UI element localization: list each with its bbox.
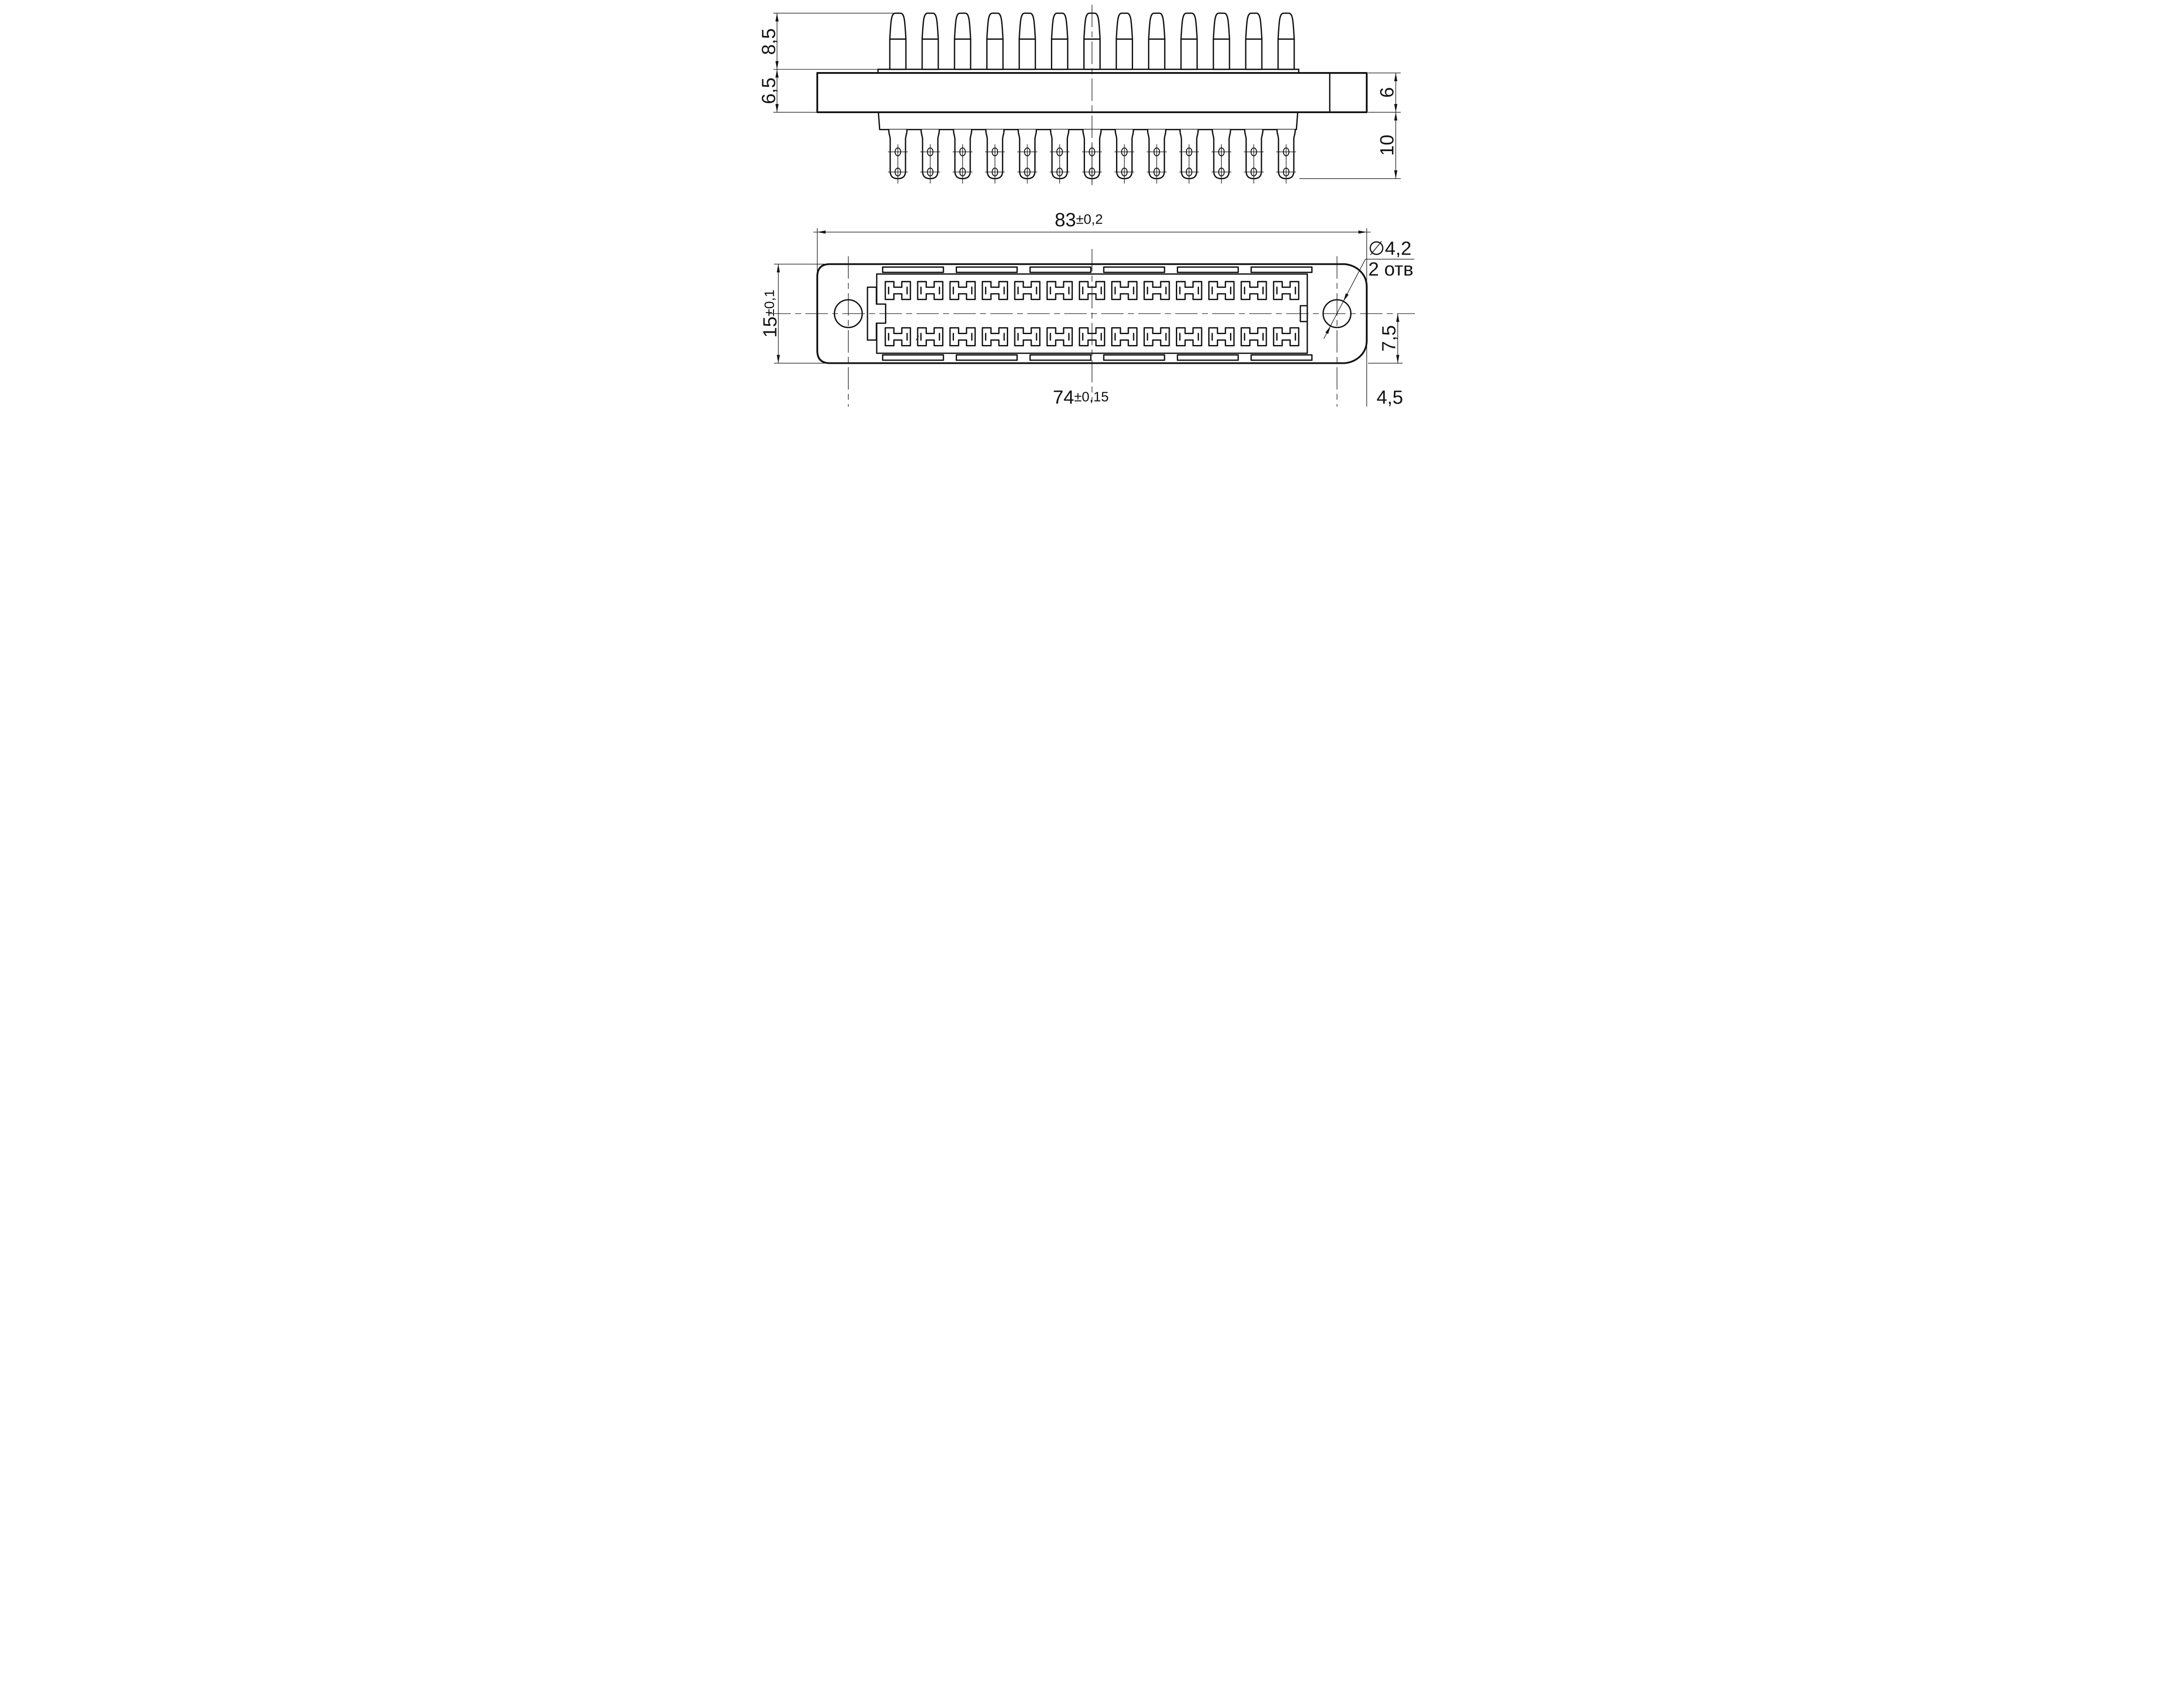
arrowhead	[1394, 170, 1397, 179]
front-view: 83±0,2 15±0,1 74±0,15 4,5 7,5	[759, 209, 1415, 407]
arrowhead	[777, 355, 780, 363]
hole-note-quantity: 2 отв	[1368, 259, 1413, 280]
arrowhead	[817, 231, 826, 234]
arrowhead	[1358, 231, 1367, 234]
hole-note-diameter: ∅4,2	[1368, 238, 1411, 259]
vent-slot	[956, 267, 1017, 273]
vent-slot	[1104, 267, 1165, 273]
pin	[1019, 13, 1035, 69]
dim-hole-edge-label: 4,5	[1376, 387, 1403, 407]
arrowhead	[775, 104, 778, 112]
arrowhead	[1396, 355, 1399, 363]
pin	[1149, 13, 1165, 69]
arrowhead	[775, 13, 778, 21]
vent-slot	[1251, 355, 1312, 360]
dim-shell-height-label: 6	[1376, 87, 1398, 97]
dim-half-height-label: 7,5	[1379, 325, 1400, 352]
pin	[987, 13, 1003, 69]
collar	[878, 112, 1298, 130]
vent-slot	[1178, 355, 1238, 360]
vent-slot	[1030, 355, 1091, 360]
technical-drawing: 8,5 6,5 6 10	[758, 0, 1426, 407]
dim-overall-width-label: 83±0,2	[1055, 209, 1103, 231]
pin	[1246, 13, 1262, 69]
dim-hole-span-label: 74±0,15	[1053, 387, 1109, 407]
arrowhead	[1394, 112, 1397, 121]
dim-tail-length-label: 10	[1376, 135, 1398, 156]
pin	[1213, 13, 1230, 69]
arrowhead	[777, 264, 780, 273]
vent-slot	[1104, 355, 1165, 360]
pin	[890, 13, 906, 69]
pin	[954, 13, 971, 69]
vent-slot	[883, 355, 943, 360]
dim-pin-height-label: 8,5	[758, 28, 779, 55]
vent-slot	[883, 267, 943, 273]
dim-body-height-label: 6,5	[758, 77, 779, 104]
arrowhead	[1394, 104, 1397, 112]
side-dim-left: 8,5 6,5	[758, 13, 816, 112]
dim-half-height: 7,5	[1368, 314, 1403, 363]
side-view: 8,5 6,5 6 10	[758, 5, 1400, 189]
vent-slot	[1030, 267, 1091, 273]
pin	[922, 13, 938, 69]
pin	[1278, 13, 1294, 69]
vent-slot	[956, 355, 1017, 360]
drawing-sheet: 8,5 6,5 6 10	[758, 0, 1426, 407]
pin	[1051, 13, 1068, 69]
pin	[1181, 13, 1197, 69]
vent-slot	[1178, 267, 1238, 273]
vent-slot	[1251, 267, 1312, 273]
arrowhead	[1396, 314, 1399, 322]
arrowhead	[1394, 73, 1397, 81]
arrowhead	[775, 61, 778, 69]
pin	[1116, 13, 1133, 69]
arrowhead	[775, 69, 778, 78]
